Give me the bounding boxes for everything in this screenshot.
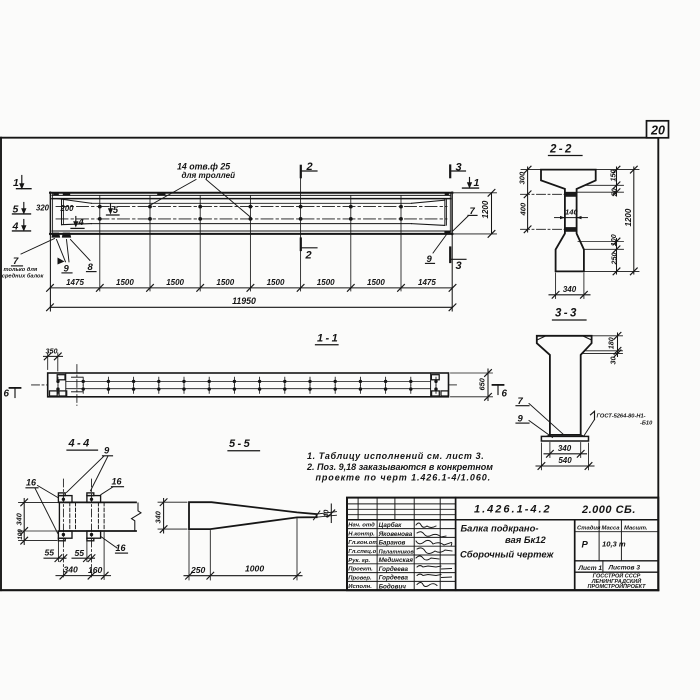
svg-text:16: 16 — [112, 477, 123, 487]
svg-text:1500: 1500 — [216, 278, 234, 287]
svg-text:Н.контр.: Н.контр. — [348, 531, 375, 537]
svg-text:3: 3 — [456, 260, 462, 272]
svg-text:20: 20 — [650, 124, 665, 138]
svg-text:200: 200 — [60, 204, 75, 213]
svg-text:100: 100 — [17, 529, 24, 540]
svg-text:1500: 1500 — [166, 278, 184, 287]
svg-text:50: 50 — [610, 188, 619, 196]
svg-text:4-4: 4-4 — [68, 438, 92, 450]
svg-text:650: 650 — [478, 377, 487, 390]
svg-text:10,3 т: 10,3 т — [602, 540, 626, 549]
svg-text:1475: 1475 — [66, 278, 84, 287]
svg-text:1500: 1500 — [267, 278, 285, 287]
svg-text:1000: 1000 — [245, 564, 264, 574]
svg-text:Провер.: Провер. — [348, 575, 372, 581]
svg-text:180: 180 — [607, 337, 616, 349]
svg-text:1: 1 — [474, 177, 480, 189]
svg-text:2: 2 — [305, 250, 312, 262]
svg-text:16: 16 — [26, 478, 37, 488]
svg-text:250: 250 — [190, 565, 206, 575]
svg-text:1200: 1200 — [624, 208, 633, 226]
svg-text:Мединская: Мединская — [379, 556, 414, 564]
svg-text:3: 3 — [456, 162, 462, 174]
svg-text:55: 55 — [75, 548, 85, 558]
svg-text:100: 100 — [609, 234, 618, 246]
svg-text:340: 340 — [563, 285, 577, 294]
svg-text:1-1: 1-1 — [317, 333, 340, 345]
svg-text:Гл.кон.от: Гл.кон.от — [348, 540, 377, 546]
svg-text:340: 340 — [14, 512, 23, 525]
svg-text:Яковенова: Яковенова — [378, 531, 413, 538]
svg-text:Баранов: Баранов — [379, 540, 406, 547]
svg-text:Бодович: Бодович — [379, 583, 407, 591]
svg-text:340: 340 — [64, 565, 79, 575]
svg-text:Листов 3: Листов 3 — [608, 565, 641, 572]
svg-text:1500: 1500 — [367, 278, 385, 287]
svg-text:Проект.: Проект. — [348, 567, 373, 573]
svg-text:1500: 1500 — [317, 278, 335, 287]
svg-text:Сборочный чертеж: Сборочный чертеж — [460, 549, 554, 560]
svg-text:Палатников: Палатников — [379, 549, 415, 555]
svg-text:Исполн.: Исполн. — [348, 584, 372, 590]
svg-text:Гордеева: Гордеева — [379, 565, 409, 573]
svg-text:5: 5 — [113, 205, 119, 216]
svg-text:2. Поз. 9,18 заказываются в ко: 2. Поз. 9,18 заказываются в конкретном — [306, 462, 493, 472]
svg-text:4: 4 — [78, 217, 85, 228]
svg-text:1. Таблицу исполнений см. лис: 1. Таблицу исполнений см. лист 3. — [307, 451, 484, 461]
svg-text:140: 140 — [565, 208, 578, 217]
svg-text:2-2: 2-2 — [549, 144, 574, 156]
svg-text:Лист 1: Лист 1 — [578, 565, 603, 572]
svg-text:340: 340 — [558, 444, 572, 453]
svg-text:320: 320 — [36, 204, 50, 213]
svg-text:Гл.спец.о: Гл.спец.о — [348, 549, 376, 555]
svg-text:средних балок: средних балок — [2, 272, 45, 279]
svg-text:300: 300 — [517, 171, 526, 184]
svg-text:400: 400 — [518, 202, 527, 216]
svg-text:ПРОМСТРОЙПРОЕКТ: ПРОМСТРОЙПРОЕКТ — [588, 582, 647, 590]
svg-text:30: 30 — [608, 357, 617, 365]
svg-text:6: 6 — [502, 389, 508, 400]
svg-text:Гордеева: Гордеева — [379, 574, 409, 582]
svg-text:1475: 1475 — [418, 278, 436, 287]
svg-text:1.426.1-4.2: 1.426.1-4.2 — [474, 504, 552, 516]
svg-text:540: 540 — [558, 456, 572, 465]
svg-text:40: 40 — [323, 510, 330, 519]
svg-text:Масшт.: Масшт. — [624, 526, 648, 532]
svg-text:Балка подкрано-: Балка подкрано- — [461, 523, 539, 534]
svg-text:-Б10: -Б10 — [640, 421, 653, 427]
svg-text:Царбак: Царбак — [379, 521, 402, 529]
svg-text:для троллей: для троллей — [182, 171, 236, 180]
svg-text:1200: 1200 — [481, 200, 490, 218]
svg-text:5-5: 5-5 — [229, 438, 252, 450]
svg-text:вая Бк12: вая Бк12 — [505, 534, 546, 545]
svg-text:Р: Р — [582, 540, 589, 551]
svg-text:Стадия: Стадия — [577, 526, 601, 532]
svg-text:6: 6 — [4, 389, 10, 400]
svg-text:150: 150 — [609, 170, 618, 182]
svg-text:55: 55 — [45, 548, 55, 558]
svg-text:2: 2 — [306, 161, 313, 173]
svg-text:Рук. гр.: Рук. гр. — [348, 558, 370, 564]
svg-text:350: 350 — [46, 347, 58, 356]
svg-text:160: 160 — [88, 565, 103, 575]
svg-text:проекте по черт 1.426.1-4/1.06: проекте по черт 1.426.1-4/1.060. — [316, 472, 492, 482]
svg-text:2.000 СБ.: 2.000 СБ. — [581, 504, 636, 516]
svg-text:Масса: Масса — [602, 526, 621, 532]
svg-text:3-3: 3-3 — [555, 308, 579, 320]
svg-text:9: 9 — [104, 446, 110, 457]
svg-text:Нач. отд: Нач. отд — [348, 523, 375, 529]
svg-text:11950: 11950 — [232, 296, 256, 306]
svg-text:340: 340 — [154, 510, 163, 523]
svg-text:1: 1 — [13, 177, 19, 189]
svg-text:только для: только для — [4, 267, 38, 273]
svg-text:1500: 1500 — [116, 278, 134, 287]
svg-text:ГОСТ-5264-80-Н1-: ГОСТ-5264-80-Н1- — [597, 414, 646, 420]
svg-text:250: 250 — [610, 253, 619, 266]
